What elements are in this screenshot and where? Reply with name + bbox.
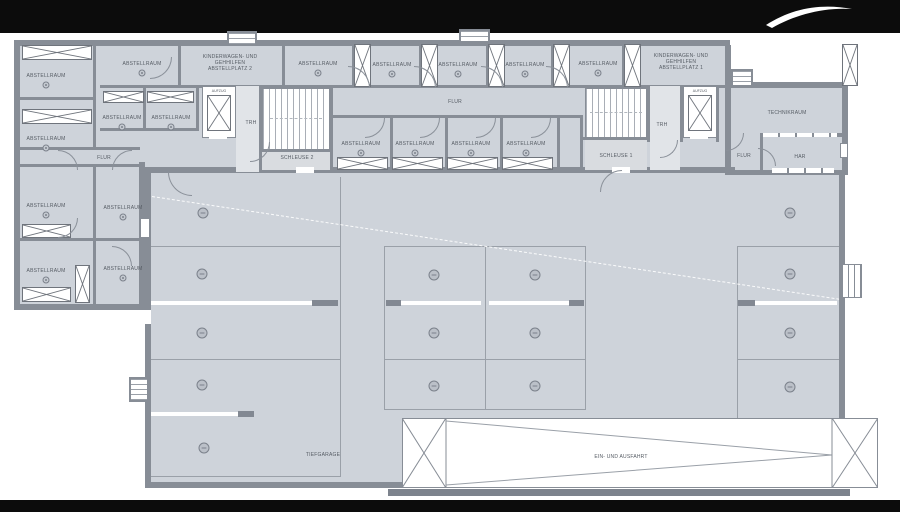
wall <box>178 45 181 85</box>
wall <box>725 45 731 175</box>
letterbox-bottom-bar <box>0 500 900 512</box>
wall <box>93 45 96 150</box>
door-gap <box>690 135 708 139</box>
room-label-aufzug: AUFZUG <box>212 88 226 94</box>
room-number-badge <box>595 70 602 77</box>
vent-chimney <box>459 29 490 43</box>
shelf-x-symbol <box>392 157 443 170</box>
room-number-badge <box>168 124 175 131</box>
stair-walk-line <box>270 118 322 119</box>
parking-divider-cap <box>386 300 401 306</box>
shelf-x-symbol <box>22 287 71 302</box>
parking-line <box>151 246 340 247</box>
vent-chimney <box>227 31 257 46</box>
room-number-badge <box>389 71 396 78</box>
room-label-flur: FLUR <box>448 99 462 105</box>
parking-space-marker <box>785 382 796 393</box>
room-label-kinderwagen-1: KINDERWAGEN- UND GEHHILFEN ABSTELLPLATZ … <box>654 53 709 71</box>
shaft-x-symbol <box>75 265 90 303</box>
wall <box>842 82 848 175</box>
shaft-x-symbol <box>624 44 641 87</box>
room-number-badge <box>139 70 146 77</box>
room-label-abstellraum: ABSTELLRAUM <box>27 136 66 142</box>
room-number-badge <box>43 212 50 219</box>
parking-space-marker <box>197 328 208 339</box>
parking-divider-cap <box>238 411 254 417</box>
floor-plan-screenshot: ABSTELLRAUM ABSTELLRAUM ABSTELLRAUM ABST… <box>0 0 900 512</box>
wall-niche <box>129 377 149 402</box>
wall <box>19 97 93 100</box>
parking-space-marker <box>197 380 208 391</box>
room-label-abstellraum: ABSTELLRAUM <box>342 141 381 147</box>
room-label-abstellraum: ABSTELLRAUM <box>104 266 143 272</box>
parking-line <box>485 246 486 410</box>
room-label-technikraum: TECHNIKRAUM <box>768 110 807 116</box>
wall <box>557 118 560 170</box>
room-number-badge <box>468 150 475 157</box>
parking-line <box>737 246 839 247</box>
room-label-abstellraum: ABSTELLRAUM <box>27 268 66 274</box>
room-label-abstellraum: ABSTELLRAUM <box>373 62 412 68</box>
parking-space-marker <box>785 269 796 280</box>
room-label-abstellraum: ABSTELLRAUM <box>579 61 618 67</box>
room-number-badge <box>43 277 50 284</box>
shaft-x-symbol <box>842 44 858 86</box>
garage-ramp <box>402 418 878 488</box>
parking-space-marker <box>199 443 210 454</box>
wall <box>330 85 333 173</box>
room-label-har: HAR <box>794 154 805 160</box>
ramp-retaining-wall <box>388 489 850 496</box>
wall <box>145 482 408 488</box>
shelf-x-symbol <box>22 45 92 60</box>
parking-divider <box>151 412 238 416</box>
shelf-x-symbol <box>447 157 498 170</box>
door-gap <box>209 135 227 139</box>
room-number-badge <box>522 71 529 78</box>
room-number-badge <box>412 150 419 157</box>
room-number-badge <box>43 145 50 152</box>
parking-line <box>384 359 586 360</box>
white-swoosh-shape <box>762 1 857 31</box>
parking-line <box>340 177 341 477</box>
wall <box>93 167 96 307</box>
label-line: ABSTELLPLATZ 1 <box>654 65 709 71</box>
room-number-badge <box>358 150 365 157</box>
parking-space-marker <box>530 328 541 339</box>
parking-space-marker <box>530 381 541 392</box>
room-label-trh: TRH <box>246 120 257 126</box>
room-label-abstellraum: ABSTELLRAUM <box>452 141 491 147</box>
elevator-car-x <box>207 95 231 131</box>
parking-space-marker <box>429 381 440 392</box>
parking-divider <box>401 301 481 305</box>
parking-space-marker <box>785 328 796 339</box>
room-label-flur: FLUR <box>737 153 751 159</box>
shelf-x-symbol <box>22 109 92 124</box>
vent-chimney <box>731 69 753 87</box>
parking-space-marker <box>197 269 208 280</box>
shelf-x-symbol <box>103 91 144 103</box>
wall <box>19 147 140 150</box>
room-number-badge <box>119 124 126 131</box>
room-label-abstellraum: ABSTELLRAUM <box>152 115 191 121</box>
room-number-badge <box>523 150 530 157</box>
parking-divider <box>489 301 569 305</box>
parking-line <box>384 246 385 410</box>
room-label-abstellraum: ABSTELLRAUM <box>299 61 338 67</box>
room-label-kinderwagen-2: KINDERWAGEN- UND GEHHILFEN ABSTELLPLATZ … <box>203 54 258 72</box>
wall <box>282 45 285 85</box>
parking-divider-cap <box>738 300 755 306</box>
room-label-abstellraum: ABSTELLRAUM <box>27 73 66 79</box>
room-number-badge <box>315 70 322 77</box>
door-gap <box>296 167 314 173</box>
vent-grille <box>763 133 837 137</box>
shelf-x-symbol <box>147 91 194 103</box>
wall <box>14 304 145 310</box>
staircase <box>262 88 330 150</box>
door-gap <box>141 310 151 324</box>
wall <box>100 128 199 131</box>
door-gap <box>140 218 150 238</box>
room-label-abstellraum: ABSTELLRAUM <box>506 62 545 68</box>
parking-line <box>737 359 839 360</box>
wall <box>14 40 20 310</box>
room-label-abstellraum: ABSTELLRAUM <box>396 141 435 147</box>
room-number-badge <box>120 214 127 221</box>
vent-grille <box>772 168 834 173</box>
parking-divider <box>755 301 837 305</box>
parking-line <box>384 409 586 410</box>
parking-line <box>151 476 340 477</box>
room-number-badge <box>120 275 127 282</box>
room-label-abstellraum: ABSTELLRAUM <box>103 115 142 121</box>
stair-walk-line <box>590 112 642 113</box>
elevator-car-x <box>688 95 712 131</box>
room-label-schleuse-1: SCHLEUSE 1 <box>599 153 632 159</box>
room-label-abstellraum: ABSTELLRAUM <box>507 141 546 147</box>
wall <box>580 115 583 173</box>
wall <box>19 238 140 241</box>
room-number-badge <box>455 71 462 78</box>
parking-divider <box>151 301 312 305</box>
door-gap <box>840 143 848 158</box>
room-label-abstellraum: ABSTELLRAUM <box>104 205 143 211</box>
room-label-aufzug: AUFZUG <box>693 88 707 94</box>
room-label-trh: TRH <box>657 122 668 128</box>
stair-landing <box>650 86 680 170</box>
parking-space-marker <box>530 270 541 281</box>
area-label-ein-und-ausfahrt: EIN- UND AUSFAHRT <box>594 454 647 460</box>
shelf-x-symbol <box>337 157 388 170</box>
room-label-abstellraum: ABSTELLRAUM <box>27 203 66 209</box>
wall-ladder <box>842 264 862 298</box>
parking-space-marker <box>429 328 440 339</box>
parking-divider-cap <box>569 300 584 306</box>
room-label-schleuse-2: SCHLEUSE 2 <box>280 155 313 161</box>
wall <box>196 88 199 130</box>
room-number-badge <box>43 82 50 89</box>
room-label-flur: FLUR <box>97 155 111 161</box>
parking-line <box>737 246 738 418</box>
parking-divider-cap <box>312 300 338 306</box>
area-label-tiefgarage: TIEFGARAGE <box>306 452 340 458</box>
parking-space-marker <box>429 270 440 281</box>
label-line: ABSTELLPLATZ 2 <box>203 66 258 72</box>
parking-space-marker <box>198 208 209 219</box>
parking-space-marker <box>785 208 796 219</box>
parking-line <box>585 246 586 410</box>
room-label-abstellraum: ABSTELLRAUM <box>439 62 478 68</box>
staircase <box>585 88 647 138</box>
letterbox-top-bar <box>0 0 900 33</box>
parking-line <box>151 359 340 360</box>
shelf-x-symbol <box>502 157 553 170</box>
room-label-abstellraum: ABSTELLRAUM <box>123 61 162 67</box>
